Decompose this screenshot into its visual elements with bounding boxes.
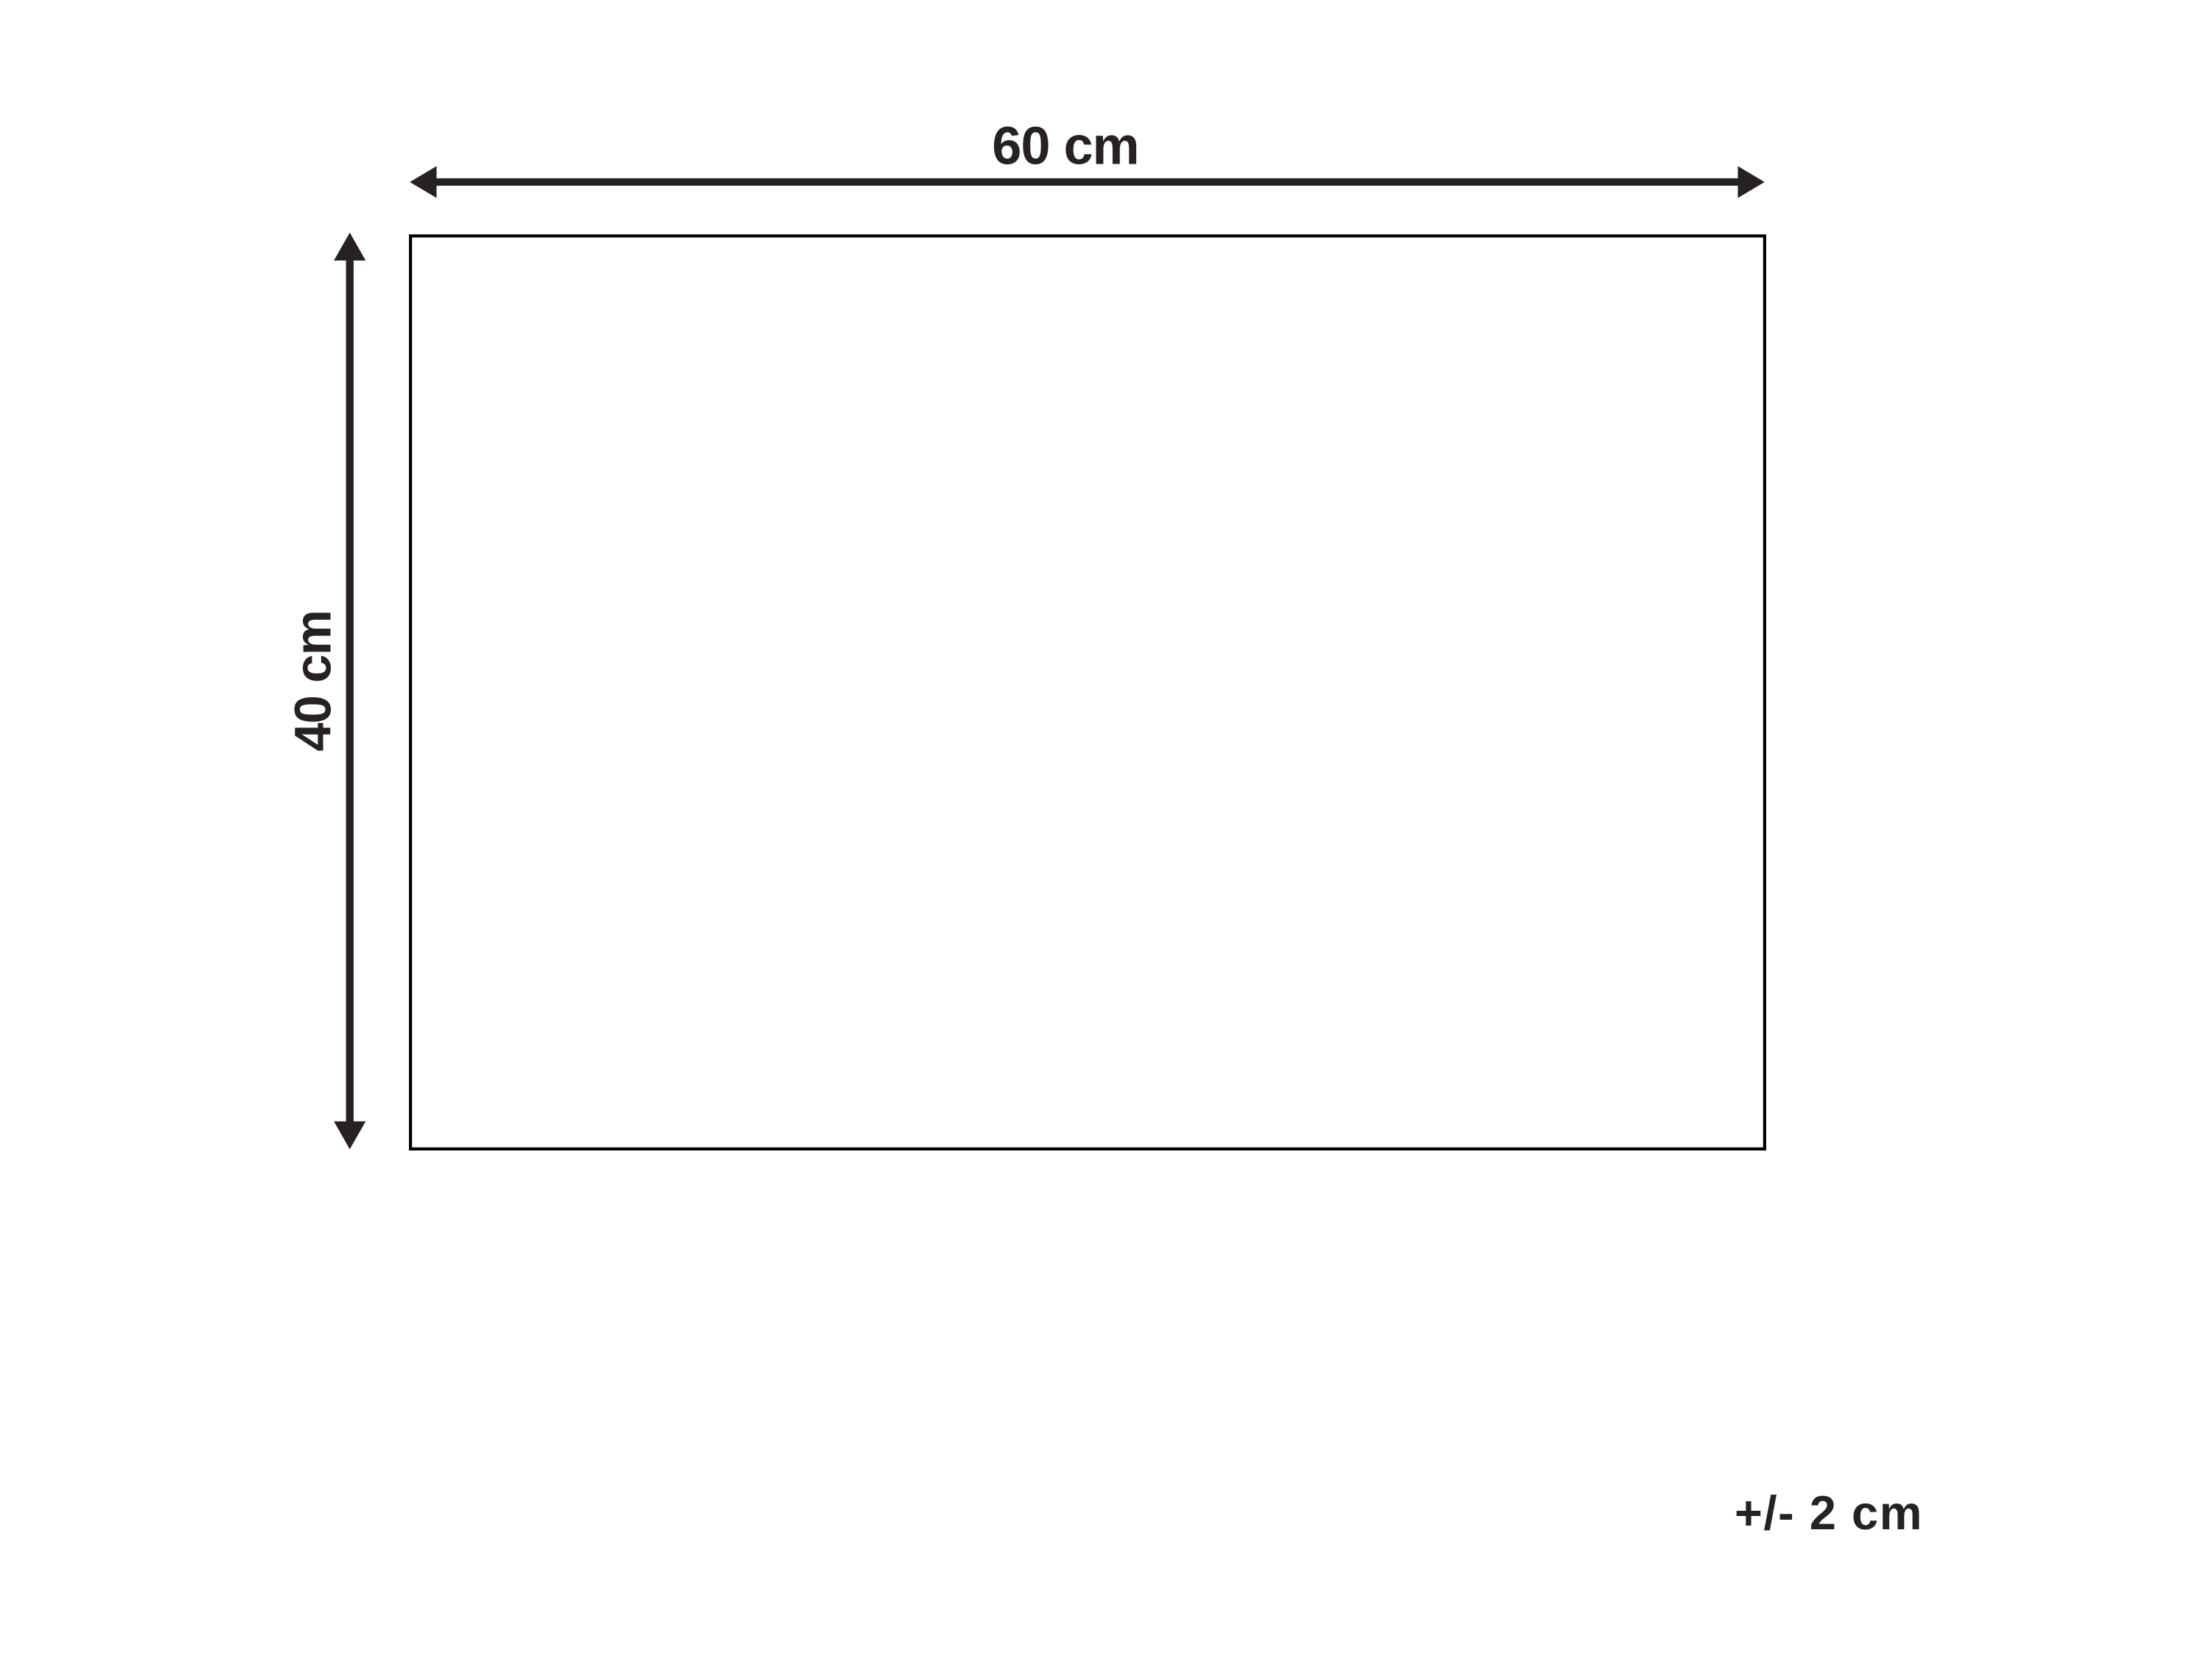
svg-text:40 cm: 40 cm (284, 611, 342, 752)
svg-text:60 cm: 60 cm (992, 117, 1138, 176)
svg-text:+/- 2 cm: +/- 2 cm (1735, 1486, 1923, 1540)
